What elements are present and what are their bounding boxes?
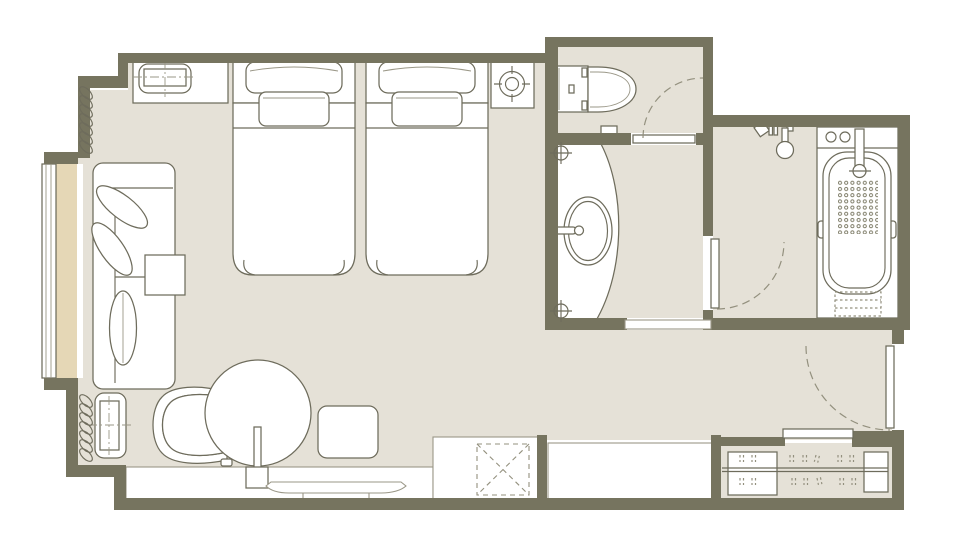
entry-door-leaf: [886, 346, 894, 428]
bed-1: [233, 58, 355, 275]
vanity-threshold: [625, 320, 711, 329]
desk: [548, 443, 712, 499]
ceiling-fixture: [491, 62, 534, 108]
bathtub: [817, 127, 898, 318]
bathroom-door-leaf: [711, 239, 719, 308]
tub-faucet: [855, 129, 864, 167]
wardrobe-shelf-left: [728, 452, 777, 495]
wardrobe-opening-panel: [783, 429, 853, 438]
tub-antislip-dots: [838, 180, 878, 234]
entry-hall-floor: [545, 330, 892, 440]
luggage-area: [433, 437, 538, 499]
ottoman: [318, 406, 378, 458]
console-2: [88, 393, 132, 458]
side-table: [145, 255, 185, 295]
window-inner-edge: [77, 164, 83, 378]
window-glazing: [42, 164, 56, 378]
floor-plan-page: [0, 0, 960, 546]
floor-plan: [0, 0, 960, 546]
toilet-door-leaf: [633, 135, 695, 143]
toilet: [552, 66, 636, 112]
vanity-opening: [625, 320, 711, 329]
window: [42, 164, 83, 378]
nightstand: [133, 58, 228, 103]
window-bay-sill: [56, 164, 77, 378]
bed-2: [366, 58, 488, 275]
